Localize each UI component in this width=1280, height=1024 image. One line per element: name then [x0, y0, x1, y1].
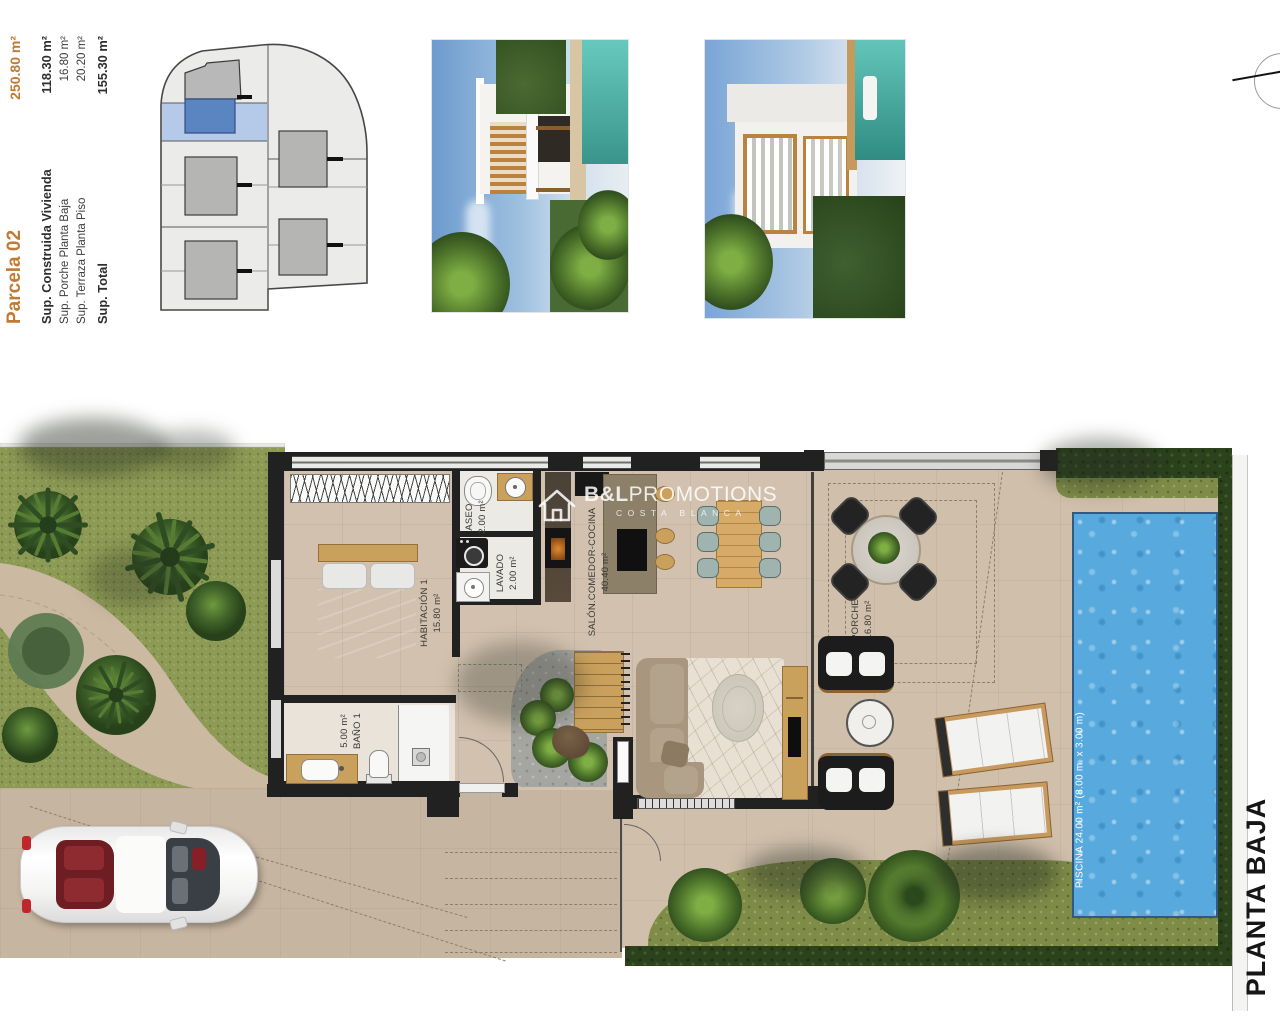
- pool-label: PISCINA 24.00 m² (8.00 m. x 3.00 m): [1073, 712, 1087, 888]
- oven: [545, 528, 571, 568]
- cooktop: [617, 529, 647, 571]
- spec-row: Sup. Construida Vivienda 118.30 m²: [39, 36, 54, 324]
- room-label-salon: SALÓN.COMEDOR-COCINA 40.40 m²: [587, 508, 613, 637]
- lounger-render: [863, 76, 877, 120]
- window-left: [271, 560, 281, 648]
- site-plan-map: [147, 33, 368, 320]
- pergola-beam: [824, 452, 1042, 470]
- wall-bedroom-bottom: [284, 695, 456, 703]
- room-label-habitacion1: HABITACIÓN 1 15.80 m²: [419, 579, 445, 647]
- window-top: [292, 456, 548, 469]
- villa-render-1: [432, 40, 628, 312]
- floor-title: PLANTA BAJA: [1238, 798, 1274, 997]
- window-left: [271, 700, 281, 758]
- door-leaf: [617, 741, 629, 783]
- shower-area: [398, 705, 449, 783]
- pillow: [370, 563, 415, 589]
- duvet: [318, 589, 416, 658]
- bush: [2, 707, 58, 763]
- bar-stool: [655, 554, 675, 570]
- parcela-area: 250.80 m²: [7, 36, 23, 100]
- dining-chair: [697, 532, 719, 552]
- shower-head: [412, 748, 430, 766]
- bar-stool: [655, 486, 675, 502]
- plot-divider-line: [620, 800, 622, 952]
- stairs: [574, 651, 624, 733]
- plan-sheet: Parcela 02 250.80 m² Sup. Construida Viv…: [0, 0, 1280, 1024]
- outdoor-side-table: [846, 699, 894, 747]
- taillight: [22, 836, 31, 850]
- palm-tree: [6, 484, 90, 566]
- car-top-view: [20, 826, 258, 923]
- dining-chair: [759, 532, 781, 552]
- window-salon-bottom: [637, 798, 735, 809]
- glass-wall: [811, 472, 814, 788]
- taillight: [22, 899, 31, 913]
- vanity: [286, 754, 358, 784]
- pool: [1072, 512, 1218, 918]
- grass-strip-top: [1056, 478, 1232, 498]
- room-label-porche: PORCHE 16.80 m²: [850, 599, 876, 641]
- tv: [788, 717, 801, 757]
- double-bed: [318, 544, 416, 658]
- spec-row: Sup. Porche Planta Baja 16.80 m²: [59, 36, 71, 324]
- dining-table: [716, 500, 762, 588]
- hedge-right: [1218, 478, 1232, 948]
- washing-machine: [456, 538, 488, 568]
- laundry-sink: [456, 572, 490, 602]
- sofa-chaise: [636, 762, 704, 798]
- room-label-aseo: ASEO 2.00 m²: [464, 500, 490, 534]
- hedge-top: [1056, 448, 1232, 478]
- washbasin-shelf: [497, 473, 533, 501]
- room-label-bano1: BAÑO 1 5.00 m²: [339, 713, 365, 749]
- entry-threshold: [459, 783, 505, 793]
- sun-lounger: [938, 781, 1052, 846]
- stair-rail-ticks: [621, 653, 630, 727]
- north-compass-icon: [1254, 53, 1280, 109]
- table-plant: [868, 532, 900, 564]
- spec-row: Sup. Total 155.30 m²: [95, 36, 110, 324]
- bush: [186, 581, 246, 641]
- car-rear-glass: [56, 840, 114, 909]
- outdoor-sofa: [818, 636, 894, 693]
- bush: [800, 858, 866, 924]
- balcony-slats: [490, 122, 526, 194]
- car-windshield: [166, 838, 220, 911]
- wardrobe: [290, 474, 450, 503]
- hedge-bottom: [625, 946, 1232, 966]
- dining-chair: [759, 506, 781, 526]
- wall-kitchen-left: [533, 471, 541, 605]
- parcela-title: Parcela 02: [4, 230, 26, 324]
- car-roof: [116, 836, 166, 913]
- villa-render-2: [705, 40, 905, 318]
- headboard: [318, 544, 418, 562]
- toilet: [366, 750, 390, 782]
- kitchen-cabinets: [545, 472, 571, 602]
- dining-chair: [697, 506, 719, 526]
- room-label-lavado: LAVADO 2.00 m²: [495, 554, 521, 592]
- window-top: [700, 456, 760, 469]
- pool-render: [582, 40, 628, 164]
- pillow: [322, 563, 367, 589]
- outdoor-sofa: [818, 753, 894, 810]
- window-top: [583, 456, 631, 469]
- bar-stool: [655, 528, 675, 544]
- bush: [668, 868, 742, 942]
- hedge: [813, 196, 905, 318]
- hedge: [496, 40, 566, 114]
- dining-chair: [697, 558, 719, 578]
- cushion: [660, 740, 690, 769]
- dining-chair: [759, 558, 781, 578]
- title-block: Parcela 02 250.80 m² Sup. Construida Viv…: [4, 36, 140, 326]
- spec-row: Sup. Terraza Planta Piso 20.20 m²: [76, 36, 88, 324]
- highlighted-building: [185, 99, 235, 133]
- coffee-table: [712, 674, 764, 742]
- fence-line: [0, 443, 285, 447]
- garden-left: [0, 443, 285, 793]
- tv-cabinet: [782, 666, 808, 800]
